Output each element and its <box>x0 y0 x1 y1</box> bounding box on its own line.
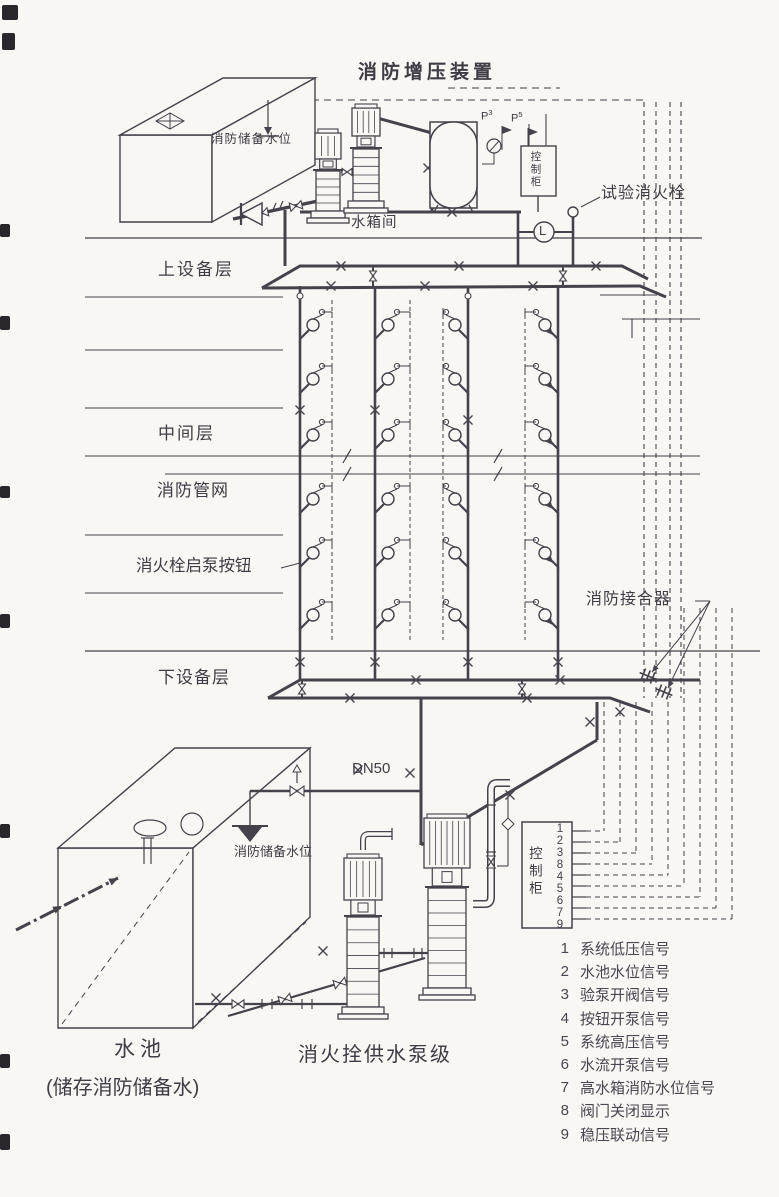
legend-item: 5系统高压信号 <box>556 1030 715 1053</box>
test-hydrant-label: 试验消火栓 <box>601 185 686 203</box>
terminal-number: 3 <box>552 847 568 859</box>
terminal-number: 5 <box>552 883 568 895</box>
legend-item: 1系统低压信号 <box>556 937 715 960</box>
diagram-title: 消防增压装置 <box>358 63 496 84</box>
terminal-number: 1 <box>552 823 568 835</box>
legend-item: 4按钮开泵信号 <box>556 1007 715 1030</box>
pool-label: 水池 <box>114 1038 166 1061</box>
legend-item: 6水流开泵信号 <box>556 1053 715 1076</box>
lower-equipment-floor-label: 下设备层 <box>158 669 230 688</box>
legend-item: 2水池水位信号 <box>556 960 715 983</box>
signal-legend: 1系统低压信号 2水池水位信号 3验泵开阀信号 4按钮开泵信号 5系统高压信号 … <box>556 937 715 1146</box>
terminal-number: 8 <box>552 859 568 871</box>
pressure-point-3-label: P3 <box>481 109 493 123</box>
siamese-connection-label: 消防接合器 <box>586 591 671 609</box>
cabinet-terminal-numbers: 1 2 3 8 4 5 6 7 9 <box>552 823 568 925</box>
pressure-point-5-label: P5 <box>511 111 523 125</box>
scan-artifact <box>0 486 10 498</box>
scan-artifact <box>0 614 10 628</box>
terminal-number: 4 <box>552 871 568 883</box>
scan-artifact <box>0 824 10 838</box>
fire-protection-system-diagram: 消防增压装置 消防储备水位 水箱间 试验消火栓 上设备层 中间层 消防管网 消火… <box>0 0 779 1197</box>
pool-note-label: (储存消防储备水) <box>46 1077 199 1099</box>
tank-room-label: 水箱间 <box>351 216 398 232</box>
legend-item: 3验泵开阀信号 <box>556 983 715 1006</box>
pump-group-label: 消火拴供水泵级 <box>298 1044 452 1066</box>
scan-artifact <box>0 1134 10 1150</box>
upper-tank-level-label: 消防储备水位 <box>211 133 292 147</box>
fire-pipe-network-label: 消防管网 <box>157 482 229 501</box>
control-cabinet-bottom-label: 控制柜 <box>526 846 541 899</box>
scan-artifact <box>0 224 10 237</box>
terminal-number: 2 <box>552 835 568 847</box>
scan-artifact <box>0 1054 10 1068</box>
terminal-number: 6 <box>552 895 568 907</box>
legend-item: 8阀门关闭显示 <box>556 1099 715 1122</box>
middle-floor-label: 中间层 <box>158 425 215 444</box>
terminal-number: 7 <box>552 907 568 919</box>
pool-reserve-level-label: 消防储备水位 <box>234 845 312 859</box>
hydrant-pump-button-label: 消火栓启泵按钮 <box>136 557 252 575</box>
scan-artifact <box>2 5 18 20</box>
scan-artifact <box>0 316 10 330</box>
control-cabinet-top-label: 控制柜 <box>529 151 541 189</box>
legend-item: 9稳压联动信号 <box>556 1123 715 1146</box>
terminal-number: 9 <box>552 919 568 931</box>
flow-indicator-label: L <box>539 224 546 238</box>
pipe-size-label: DN50 <box>352 761 390 778</box>
legend-item: 7高水箱消防水位信号 <box>556 1076 715 1099</box>
scan-artifact <box>2 33 15 50</box>
upper-equipment-floor-label: 上设备层 <box>158 261 234 280</box>
